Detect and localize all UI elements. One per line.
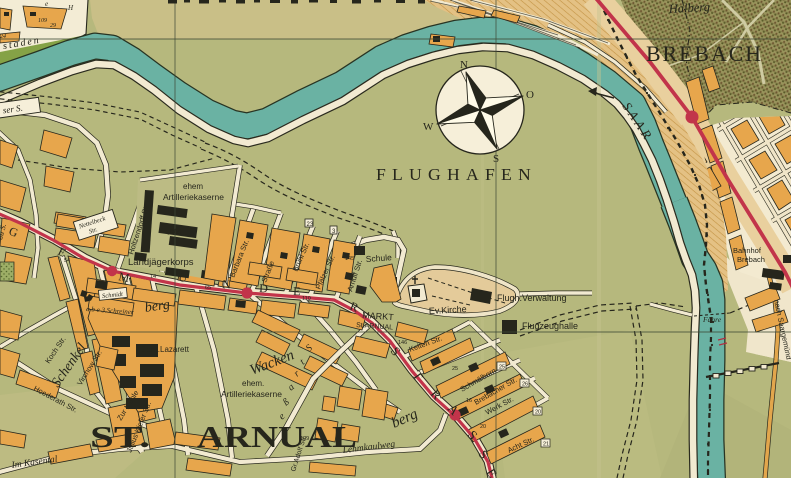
svg-text:14: 14	[150, 274, 156, 280]
svg-text:W: W	[423, 121, 434, 133]
svg-text:ARNUAL: ARNUAL	[197, 419, 357, 454]
svg-text:S: S	[493, 153, 499, 165]
svg-text:Schule: Schule	[365, 252, 392, 264]
svg-text:Flugzeughalle: Flugzeughalle	[522, 321, 578, 331]
svg-text:Flugh.Verwaltung: Flugh.Verwaltung	[497, 293, 567, 303]
svg-text:109: 109	[300, 436, 309, 442]
svg-text:Landjägerkorps: Landjägerkorps	[128, 257, 194, 268]
svg-text:Ev.Kirche: Ev.Kirche	[429, 304, 467, 316]
svg-text:Artilleriekaserne: Artilleriekaserne	[221, 389, 282, 399]
svg-text:jetzt: jetzt	[167, 226, 183, 236]
svg-text:N: N	[222, 277, 232, 292]
svg-text:O: O	[526, 89, 534, 101]
svg-text:20: 20	[480, 424, 486, 430]
svg-text:20: 20	[535, 410, 541, 416]
svg-text:Brebach: Brebach	[737, 255, 765, 264]
svg-text:Ü: Ü	[178, 270, 188, 285]
svg-text:54: 54	[64, 258, 70, 264]
svg-text:Bahnhof: Bahnhof	[733, 246, 762, 255]
svg-text:H: H	[67, 4, 74, 12]
svg-text:Halberg: Halberg	[667, 0, 710, 16]
svg-text:146: 146	[398, 340, 407, 346]
svg-text:Fähre: Fähre	[702, 315, 722, 324]
svg-text:ehem.: ehem.	[242, 379, 264, 388]
svg-text:29: 29	[50, 23, 56, 29]
svg-text:Artilleriekaserne: Artilleriekaserne	[163, 192, 224, 202]
svg-text:E: E	[293, 284, 301, 298]
svg-text:145: 145	[345, 256, 354, 262]
svg-text:110: 110	[302, 296, 311, 302]
svg-text:N: N	[460, 59, 468, 71]
svg-text:21: 21	[543, 442, 549, 448]
svg-text:23: 23	[307, 222, 314, 228]
svg-text:65: 65	[205, 285, 211, 291]
svg-text:26: 26	[522, 382, 528, 388]
svg-text:e: e	[45, 0, 48, 8]
svg-text:16: 16	[466, 398, 472, 404]
svg-text:Garn.Lazarett: Garn.Lazarett	[140, 345, 190, 354]
svg-text:BREBACH: BREBACH	[646, 41, 763, 66]
svg-text:25: 25	[452, 366, 458, 372]
svg-text:109: 109	[38, 18, 47, 24]
svg-text:ehem: ehem	[183, 182, 203, 191]
svg-text:FLUGHAFEN: FLUGHAFEN	[376, 165, 537, 184]
svg-text:25: 25	[499, 365, 505, 371]
